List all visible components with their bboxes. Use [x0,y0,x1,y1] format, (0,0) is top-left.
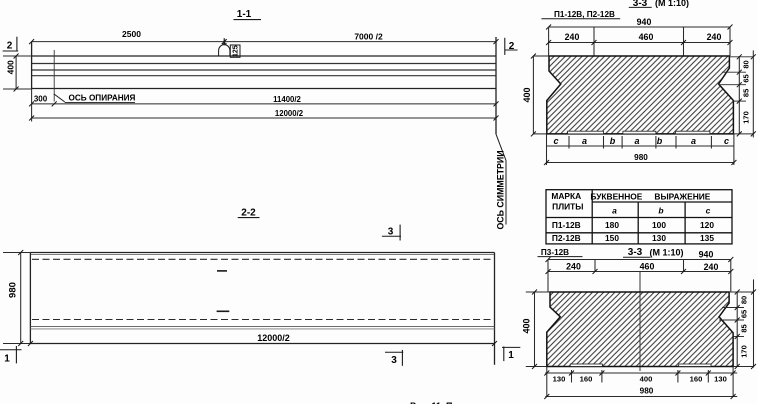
svg-text:МАРКА: МАРКА [551,191,581,201]
svg-text:2500: 2500 [122,29,141,39]
svg-text:П1-12В, П2-12В: П1-12В, П2-12В [554,10,615,19]
svg-text:120: 120 [700,220,714,230]
svg-text:b: b [610,136,616,146]
svg-text:(М 1:10): (М 1:10) [649,247,683,257]
svg-text:170: 170 [742,111,751,124]
svg-text:12000/2: 12000/2 [275,109,304,118]
svg-text:П3-12В: П3-12В [541,248,569,257]
svg-text:300: 300 [34,95,48,104]
svg-text:П2-12В: П2-12В [552,233,581,243]
svg-text:940: 940 [699,250,714,260]
svg-text:160: 160 [690,374,703,383]
svg-text:2: 2 [7,40,13,51]
svg-text:100: 100 [652,220,666,230]
svg-text:400: 400 [640,374,653,383]
svg-text:940: 940 [637,17,652,27]
svg-text:ОСЬ ОПИРАНИЯ: ОСЬ ОПИРАНИЯ [69,94,136,103]
svg-text:240: 240 [707,32,722,42]
svg-text:1-1: 1-1 [237,9,252,20]
svg-text:80: 80 [740,296,749,304]
svg-text:130: 130 [553,374,566,383]
svg-text:ОСЬ СИММЕТРИИ: ОСЬ СИММЕТРИИ [496,150,506,229]
svg-text:130: 130 [652,233,666,243]
svg-text:460: 460 [639,32,654,42]
svg-text:12000/2: 12000/2 [257,333,290,343]
svg-text:80: 80 [742,60,751,68]
svg-text:240: 240 [566,262,581,272]
svg-text:П1-12В: П1-12В [552,220,581,230]
svg-text:7000 /2: 7000 /2 [354,31,383,41]
svg-text:980: 980 [640,386,654,395]
svg-text:400: 400 [522,318,532,333]
svg-text:a: a [634,136,639,146]
svg-text:400: 400 [522,87,532,102]
svg-text:125: 125 [233,45,240,57]
svg-text:(М 1:10): (М 1:10) [655,0,689,8]
svg-text:400: 400 [5,60,15,74]
svg-text:160: 160 [580,374,593,383]
svg-text:c: c [553,136,558,146]
svg-text:1: 1 [4,353,10,364]
svg-text:85: 85 [740,324,749,332]
svg-text:b: b [658,206,663,216]
svg-text:a: a [612,206,617,216]
svg-text:85: 85 [742,89,751,97]
svg-text:980: 980 [634,153,648,162]
svg-text:b: b [657,136,663,146]
svg-text:240: 240 [704,262,719,272]
svg-text:65: 65 [742,74,751,82]
svg-text:БУКВЕННОЕ: БУКВЕННОЕ [590,192,642,202]
svg-text:180: 180 [605,220,619,230]
svg-text:a: a [582,136,587,146]
svg-text:150: 150 [605,233,619,243]
svg-text:240: 240 [565,32,580,42]
svg-text:a: a [691,136,696,146]
svg-text:65: 65 [740,310,749,318]
svg-text:c: c [724,136,729,146]
svg-text:3-3: 3-3 [628,247,643,258]
svg-text:1: 1 [508,350,514,361]
svg-text:980: 980 [8,282,19,298]
svg-text:11400/2: 11400/2 [273,95,301,104]
svg-text:ПЛИТЫ: ПЛИТЫ [552,202,583,212]
svg-text:c: c [706,206,711,216]
svg-text:2-2: 2-2 [241,208,256,219]
svg-text:170: 170 [740,345,749,358]
svg-text:ВЫРАЖЕНИЕ: ВЫРАЖЕНИЕ [654,192,710,202]
svg-text:3: 3 [391,355,397,366]
svg-text:460: 460 [640,262,655,272]
svg-text:130: 130 [714,374,727,383]
svg-text:135: 135 [700,233,714,243]
